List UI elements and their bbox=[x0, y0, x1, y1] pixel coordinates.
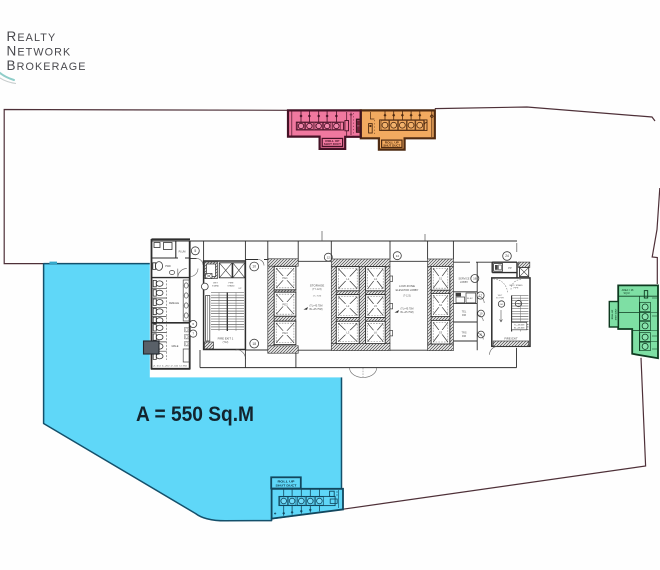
svg-text:FIRE EXIT: FIRE EXIT bbox=[504, 336, 518, 340]
svg-text:NETWORK: NETWORK bbox=[7, 44, 72, 59]
svg-text:STORAGE: STORAGE bbox=[310, 284, 325, 288]
svg-text:24: 24 bbox=[505, 254, 509, 258]
svg-text:UP: UP bbox=[238, 288, 242, 290]
svg-text:L2: L2 bbox=[346, 304, 350, 308]
svg-text:BL+48.30M: BL+48.30M bbox=[514, 327, 525, 329]
svg-text:TL+48.30M: TL+48.30M bbox=[514, 325, 525, 327]
svg-text:ST. PIPE: ST. PIPE bbox=[496, 297, 505, 299]
svg-text:SQ.M: SQ.M bbox=[623, 292, 629, 295]
svg-text:BROKERAGE: BROKERAGE bbox=[7, 58, 87, 73]
svg-text:(T-123): (T-123) bbox=[403, 295, 411, 298]
svg-text:L4: L4 bbox=[374, 277, 378, 281]
svg-text:ELEVATOR LOBBY: ELEVATOR LOBBY bbox=[396, 288, 419, 292]
svg-text:18: 18 bbox=[252, 342, 256, 346]
svg-text:LOBBY: LOBBY bbox=[460, 281, 469, 284]
svg-text:ROLL UP: ROLL UP bbox=[612, 309, 614, 319]
svg-text:10: 10 bbox=[252, 265, 256, 269]
svg-text:MALE: MALE bbox=[172, 345, 179, 348]
svg-text:PP: PP bbox=[508, 266, 512, 270]
svg-text:L1: L1 bbox=[346, 277, 350, 281]
svg-text:ELEC: ELEC bbox=[467, 298, 473, 300]
svg-text:SHUT DUCT: SHUT DUCT bbox=[324, 142, 341, 146]
svg-text:SHUT DUCT: SHUT DUCT bbox=[616, 308, 618, 320]
svg-text:(TL+45.75M: (TL+45.75M bbox=[310, 305, 323, 308]
svg-text:(TL+45.75M: (TL+45.75M bbox=[401, 308, 414, 311]
svg-text:WET: WET bbox=[213, 283, 219, 285]
svg-text:BL+45.75M): BL+45.75M) bbox=[400, 311, 413, 314]
svg-text:L6: L6 bbox=[374, 331, 378, 335]
svg-text:RM: RM bbox=[462, 335, 466, 338]
svg-text:L3: L3 bbox=[346, 331, 350, 335]
svg-text:PE2: PE2 bbox=[282, 302, 288, 306]
svg-text:2.10 1.20 2.10 0.90: 2.10 1.20 2.10 0.90 bbox=[153, 365, 188, 367]
svg-text:STAND: STAND bbox=[212, 284, 220, 287]
svg-text:REALTY: REALTY bbox=[7, 29, 57, 44]
svg-text:16: 16 bbox=[473, 277, 477, 281]
svg-text:PE1: PE1 bbox=[282, 276, 288, 280]
svg-text:PE3: PE3 bbox=[282, 331, 288, 335]
svg-text:LOW ZONE: LOW ZONE bbox=[399, 284, 415, 288]
svg-text:12: 12 bbox=[327, 255, 331, 259]
svg-text:PLUM: PLUM bbox=[179, 251, 186, 254]
svg-text:S2: S2 bbox=[439, 303, 443, 307]
svg-text:FEMALE: FEMALE bbox=[169, 302, 179, 305]
svg-text:(TY-123): (TY-123) bbox=[312, 288, 321, 291]
svg-text:BL+45.75M): BL+45.75M) bbox=[309, 308, 322, 311]
svg-text:PWD: PWD bbox=[165, 265, 171, 268]
svg-text:PIPE: PIPE bbox=[514, 288, 519, 290]
svg-text:17+TCM: 17+TCM bbox=[313, 296, 322, 298]
svg-text:S3: S3 bbox=[439, 330, 443, 334]
svg-text:FIRE: FIRE bbox=[229, 283, 235, 285]
svg-text:L5: L5 bbox=[374, 304, 378, 308]
svg-text:FIRE EXIT 1: FIRE EXIT 1 bbox=[218, 337, 234, 341]
svg-text:A = 550 Sq.M: A = 550 Sq.M bbox=[136, 402, 254, 426]
svg-text:SHUT DUCT: SHUT DUCT bbox=[276, 483, 297, 487]
svg-text:S1: S1 bbox=[439, 276, 443, 280]
svg-text:STAND: STAND bbox=[227, 284, 235, 287]
svg-text:SHUT DUCT: SHUT DUCT bbox=[383, 145, 401, 148]
svg-text:(T12): (T12) bbox=[223, 341, 229, 344]
svg-text:FH2: FH2 bbox=[500, 304, 504, 306]
svg-text:14: 14 bbox=[396, 254, 400, 258]
svg-text:WET / STAND: WET / STAND bbox=[509, 284, 523, 287]
svg-text:5: 5 bbox=[194, 249, 196, 253]
svg-text:FH5: FH5 bbox=[517, 304, 521, 306]
svg-text:RM: RM bbox=[462, 314, 466, 317]
